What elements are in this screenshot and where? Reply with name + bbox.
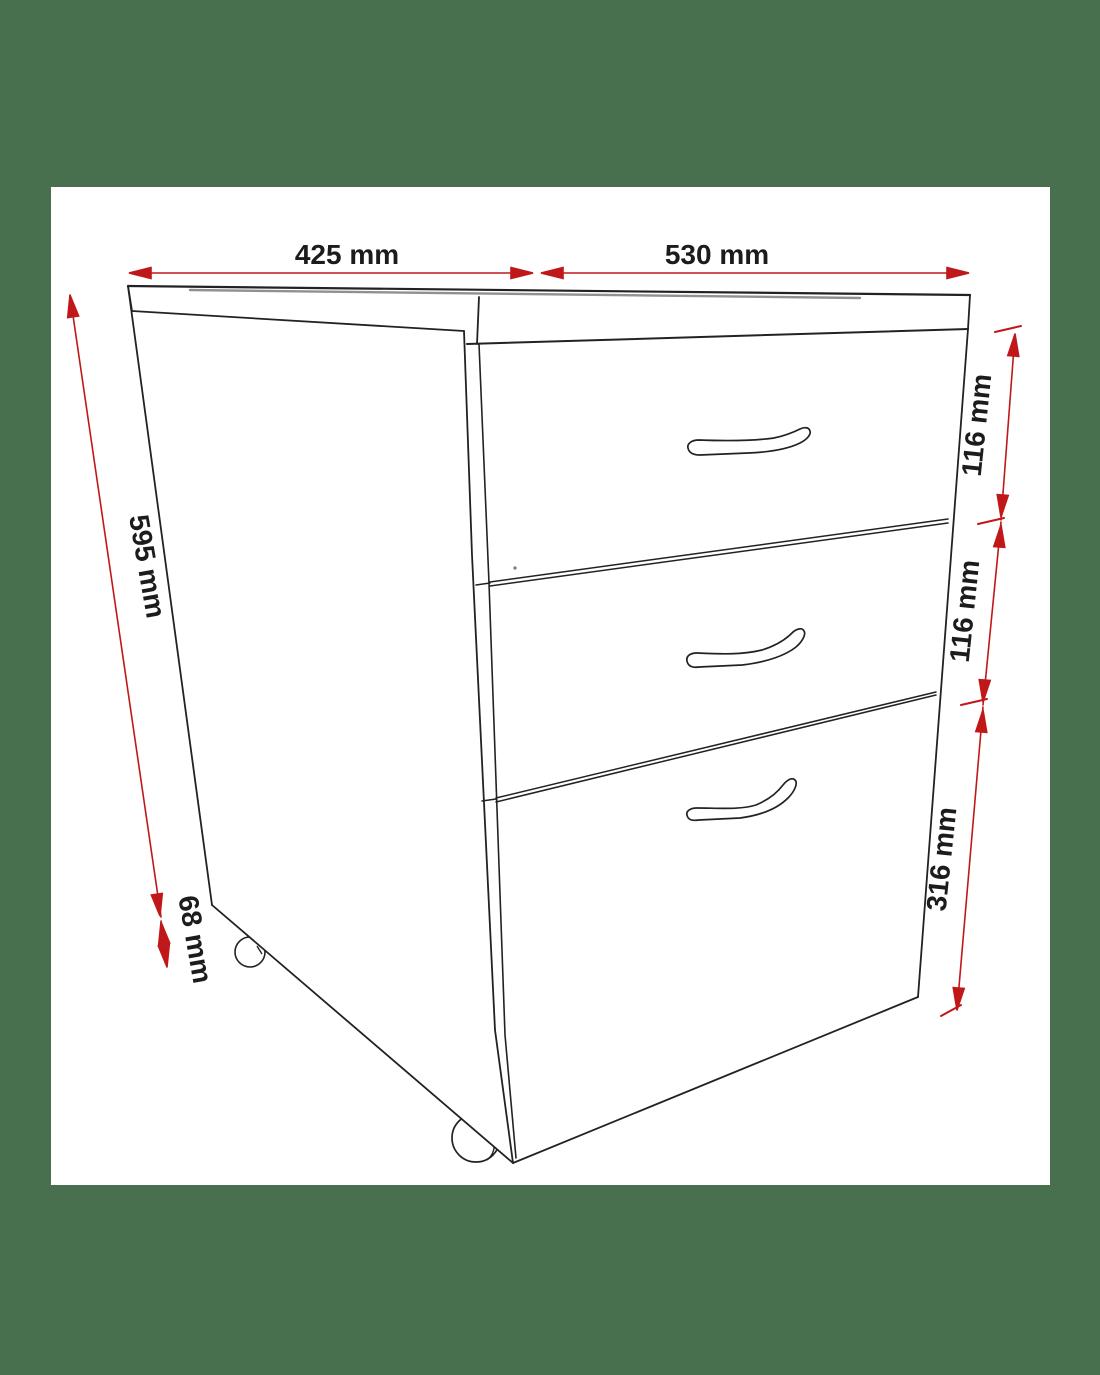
- arrow: [158, 944, 172, 967]
- arrow: [151, 893, 165, 916]
- arrow: [541, 268, 563, 279]
- arrow: [511, 268, 533, 279]
- label-depth-425: 425 mm: [295, 239, 399, 270]
- dimension-drawing-svg: 425 mm 530 mm 595 mm 68 mm 116 mm 116 mm…: [0, 0, 1100, 1375]
- arrow: [129, 268, 151, 279]
- arrow: [947, 268, 969, 279]
- arrow: [156, 921, 170, 944]
- label-width-530: 530 mm: [665, 239, 769, 270]
- arrow: [994, 525, 1007, 548]
- dimline-316: [957, 707, 983, 1010]
- arrow: [65, 294, 79, 317]
- arrow: [996, 495, 1009, 518]
- screenshot-stage: 425 mm 530 mm 595 mm 68 mm 116 mm 116 mm…: [0, 0, 1100, 1375]
- cabinet-body-fill: [128, 286, 970, 1163]
- tick: [995, 326, 1021, 332]
- arrow: [1008, 334, 1021, 357]
- tick: [941, 1005, 961, 1016]
- dimline-116a: [1001, 334, 1015, 520]
- dimline-116b: [983, 522, 1001, 705]
- label-caster-68: 68 mm: [172, 893, 218, 986]
- stray-dot: [513, 566, 516, 569]
- arrow: [976, 710, 989, 733]
